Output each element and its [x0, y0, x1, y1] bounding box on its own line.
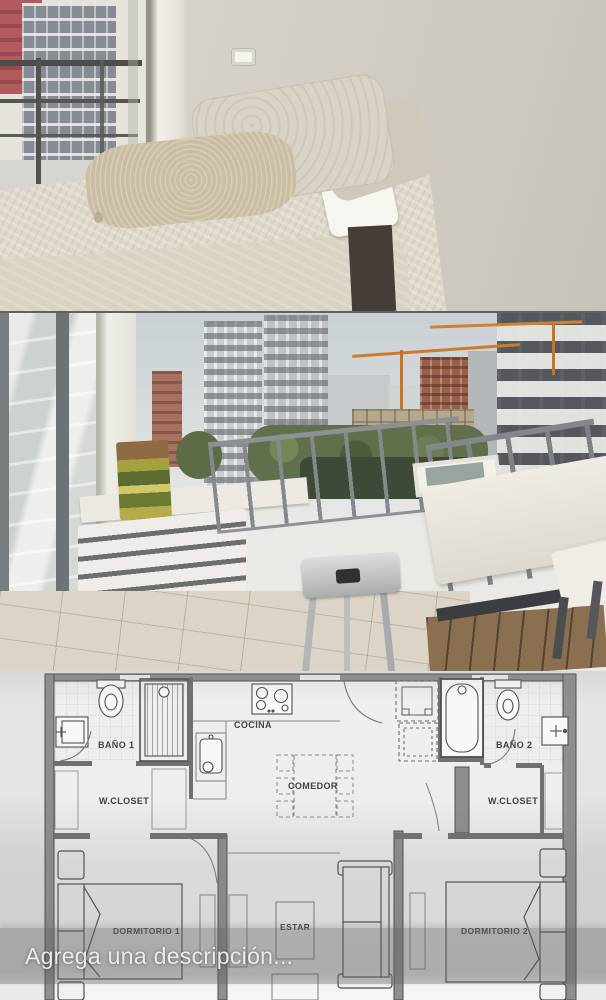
- label-bano-1: BAÑO 1: [98, 740, 134, 750]
- railing-bar: [0, 60, 142, 66]
- caption-input[interactable]: Agrega una descripción...: [0, 928, 606, 984]
- grain-bags: [116, 440, 172, 521]
- railing-post: [36, 58, 41, 184]
- stool-handle-hole: [336, 568, 361, 584]
- bed-base: [348, 225, 396, 311]
- label-bano-2: BAÑO 2: [496, 740, 532, 750]
- railing-bar: [0, 134, 138, 137]
- label-wcloset-left: W.CLOSET: [99, 796, 149, 806]
- label-cocina: COCINA: [234, 720, 272, 730]
- caption-placeholder[interactable]: Agrega una descripción...: [25, 928, 585, 984]
- bedroom-photo: [0, 0, 606, 311]
- railing-bar: [0, 99, 140, 103]
- label-comedor: COMEDOR: [288, 781, 338, 791]
- balcony-photo: [0, 311, 606, 671]
- tile-floor: [0, 591, 470, 671]
- stool-leg: [344, 593, 350, 671]
- media-preview-screen: BAÑO 1 W.CLOSET COCINA COMEDOR BAÑO 2 W.…: [0, 0, 606, 1000]
- label-wcloset-right: W.CLOSET: [488, 796, 538, 806]
- pillow-tassel: [94, 212, 103, 223]
- light-switch: [231, 48, 256, 66]
- crane-mast-2: [552, 323, 555, 375]
